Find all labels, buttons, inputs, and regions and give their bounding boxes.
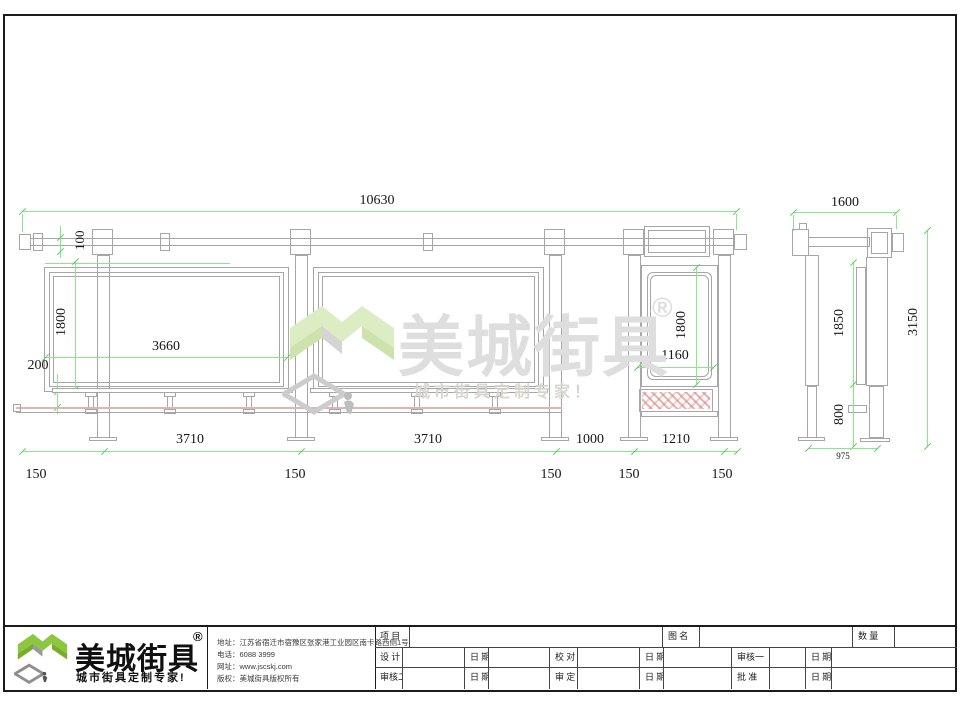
tb-label: 日 期	[640, 648, 664, 668]
tb-value	[664, 668, 732, 689]
post-top-block	[544, 229, 565, 255]
bench-seat-end	[13, 404, 21, 412]
tb-value	[832, 648, 957, 668]
side-roof-beam	[808, 237, 870, 247]
tb-value	[489, 668, 550, 689]
tb-value	[410, 627, 663, 648]
dim-seat-offset: 200	[22, 358, 54, 374]
sign-hatch-panel	[642, 392, 710, 409]
dimension-extension	[22, 214, 23, 232]
dim-post-width: 150	[611, 467, 647, 483]
dim-post-width: 150	[533, 467, 569, 483]
beam-end-cap	[19, 234, 31, 250]
bench-leg	[85, 392, 97, 414]
tb-label: 数 量	[853, 627, 895, 648]
dim-total-width: 10630	[349, 193, 405, 209]
tb-label: 日 期	[640, 668, 664, 689]
tb-label: 日 期	[806, 648, 832, 668]
bench-leg	[243, 392, 255, 414]
watermark-registered-icon: ®	[652, 292, 675, 324]
tb-label: 审核一	[732, 648, 770, 668]
tb-value	[578, 648, 640, 668]
tb-value	[578, 668, 640, 689]
bench-leg	[164, 392, 176, 414]
tb-value	[700, 627, 853, 648]
sign-bottom-rail	[641, 411, 718, 417]
side-front-post-lower	[869, 386, 884, 438]
post-top-block	[290, 229, 311, 255]
table-row: 审核二 日 期 审 定 日 期 批 准 日 期	[375, 668, 957, 689]
tb-label: 日 期	[465, 668, 489, 689]
dim-panel-height: 1800	[54, 295, 70, 349]
watermark-brand: 美城街具	[398, 294, 670, 390]
tb-value	[770, 668, 806, 689]
tb-value	[664, 648, 732, 668]
post-top-block	[713, 229, 734, 255]
tb-value	[832, 668, 957, 689]
dim-bay2: 3710	[398, 432, 458, 448]
dimension-line	[60, 226, 61, 258]
dim-side-lower-height: 800	[832, 394, 848, 436]
dimension-line	[22, 451, 737, 452]
company-tagline: 城市街具定制专家!	[76, 669, 186, 685]
tb-label: 日 期	[806, 668, 832, 689]
dim-sign-height: 1800	[674, 302, 690, 348]
panel-glass	[53, 276, 280, 383]
tb-label: 审 定	[550, 668, 578, 689]
tb-value	[403, 648, 465, 668]
dimension-line	[45, 357, 287, 358]
beam-end-cap	[734, 234, 747, 250]
dimension-line	[853, 385, 854, 447]
tb-value	[770, 648, 806, 668]
base-plate	[798, 437, 825, 441]
title-block-table: 项 目 图 名 数 量 设 计 日 期 校 对 日 期 审核一 日 期	[375, 627, 957, 689]
dim-gap: 1000	[565, 432, 615, 448]
station-name-box-inner	[648, 230, 706, 253]
side-back-post	[805, 255, 819, 386]
dimension-line	[75, 261, 76, 390]
side-front-cap	[892, 233, 904, 252]
dim-panel-width: 3660	[140, 339, 192, 355]
side-back-post-lower	[807, 386, 817, 438]
footer-divider-vertical	[207, 627, 208, 689]
dim-post-width: 150	[18, 467, 54, 483]
beam-clamp	[33, 233, 43, 251]
base-plate	[710, 437, 738, 441]
dim-side-panel-height: 1850	[832, 296, 848, 350]
side-back-cap	[792, 229, 809, 256]
tb-label: 校 对	[550, 648, 578, 668]
side-beam-section-inner	[871, 232, 888, 254]
post-top-block	[623, 229, 644, 255]
dimension-extension	[896, 215, 897, 229]
base-plate	[860, 438, 890, 442]
company-logo-icon	[14, 632, 70, 688]
beam-clamp	[423, 233, 433, 251]
dim-side-base-width: 975	[828, 451, 858, 461]
tb-label: 审核二	[375, 668, 403, 689]
table-row: 设 计 日 期 校 对 日 期 审核一 日 期	[375, 648, 957, 668]
watermark-tagline: 城市街具定制专家！	[414, 378, 594, 402]
dimension-line	[927, 230, 928, 447]
base-plate	[89, 437, 117, 441]
side-back-tab	[799, 223, 807, 230]
dimension-line	[793, 212, 897, 213]
tb-label: 日 期	[465, 648, 489, 668]
dim-sign-base: 1210	[651, 432, 701, 448]
tb-label: 图 名	[663, 627, 700, 648]
tb-value	[895, 627, 957, 648]
side-sign-panel	[856, 267, 866, 385]
company-registered-icon: ®	[193, 629, 203, 644]
drawing-sheet: 10630 100	[0, 0, 960, 704]
tb-label: 设 计	[375, 648, 403, 668]
dim-bay1: 3710	[160, 432, 220, 448]
tb-label: 项 目	[375, 627, 410, 648]
post-top-block	[92, 229, 113, 255]
sign-post	[718, 255, 731, 438]
dim-side-width: 1600	[815, 195, 875, 211]
base-plate	[620, 437, 648, 441]
dimension-extension	[736, 214, 737, 230]
dim-post-width: 150	[277, 467, 313, 483]
dim-beam-height: 100	[72, 224, 88, 256]
watermark-logo-icon	[282, 298, 400, 426]
dim-post-width: 150	[704, 467, 740, 483]
dimension-line	[853, 262, 854, 385]
base-plate	[287, 437, 315, 441]
beam-clamp	[160, 233, 170, 251]
tb-label: 批 准	[732, 668, 770, 689]
tb-value	[403, 668, 465, 689]
side-front-post	[866, 257, 888, 386]
tb-value	[489, 648, 550, 668]
dim-side-total-height: 3150	[906, 292, 922, 352]
table-row: 项 目 图 名 数 量	[375, 627, 957, 648]
dimension-line	[22, 211, 737, 212]
dimension-line	[808, 448, 877, 449]
side-bench-arm	[848, 405, 867, 413]
